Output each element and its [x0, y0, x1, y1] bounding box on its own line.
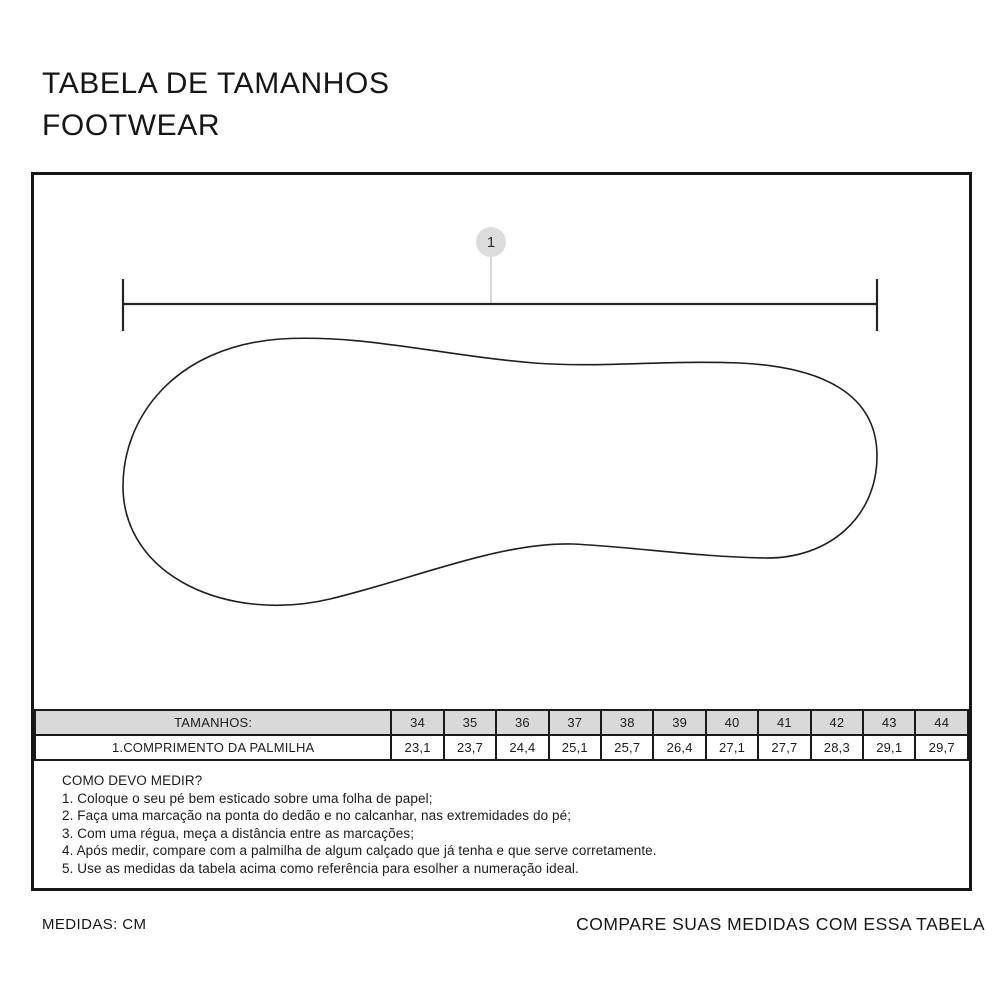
instruction-step: 2. Faça uma marcação na ponta do dedão e…	[62, 807, 942, 825]
length-cell: 29,1	[863, 735, 915, 760]
measuring-instructions: COMO DEVO MEDIR? 1. Coloque o seu pé bem…	[62, 772, 942, 877]
size-table-row-label: 1.COMPRIMENTO DA PALMILHA	[35, 735, 391, 760]
dimension-marker-1-label: 1	[487, 234, 495, 251]
size-cell: 41	[758, 710, 810, 735]
size-table: TAMANHOS: 34 35 36 37 38 39 40 41 42 43 …	[34, 709, 969, 761]
length-cell: 26,4	[653, 735, 705, 760]
length-cell: 23,7	[444, 735, 496, 760]
size-cell: 37	[549, 710, 601, 735]
length-cell: 25,1	[549, 735, 601, 760]
length-cell: 29,7	[915, 735, 968, 760]
length-cell: 28,3	[811, 735, 863, 760]
size-cell: 42	[811, 710, 863, 735]
size-cell: 36	[496, 710, 548, 735]
length-cell: 27,1	[706, 735, 758, 760]
instructions-heading: COMO DEVO MEDIR?	[62, 772, 942, 790]
page-title-line2: FOOTWEAR	[42, 109, 220, 142]
size-chart-frame: 1 TAMANHOS: 34 35 36 37 38 39 40 41 42 4…	[31, 172, 972, 891]
size-table-header-label: TAMANHOS:	[35, 710, 391, 735]
page-title-line1: TABELA DE TAMANHOS	[42, 67, 390, 100]
page-title: TABELA DE TAMANHOSFOOTWEAR	[42, 63, 390, 147]
size-chart-page: TABELA DE TAMANHOSFOOTWEAR 1 TAMANHOS: 3…	[0, 0, 1000, 1000]
size-cell: 44	[915, 710, 968, 735]
measurement-diagram-svg	[34, 175, 969, 709]
size-cell: 38	[601, 710, 653, 735]
units-note: MEDIDAS: CM	[42, 916, 146, 933]
dimension-marker-1: 1	[476, 227, 506, 257]
size-cell: 39	[653, 710, 705, 735]
size-cell: 35	[444, 710, 496, 735]
instruction-step: 1. Coloque o seu pé bem esticado sobre u…	[62, 790, 942, 808]
insole-outline	[123, 338, 877, 605]
size-cell: 43	[863, 710, 915, 735]
instruction-step: 4. Após medir, compare com a palmilha de…	[62, 842, 942, 860]
length-cell: 24,4	[496, 735, 548, 760]
measurement-diagram: 1	[34, 175, 969, 709]
size-cell: 34	[391, 710, 443, 735]
size-cell: 40	[706, 710, 758, 735]
length-cell: 25,7	[601, 735, 653, 760]
size-table-length-row: 1.COMPRIMENTO DA PALMILHA 23,1 23,7 24,4…	[35, 735, 968, 760]
instruction-step: 5. Use as medidas da tabela acima como r…	[62, 860, 942, 878]
size-table-header-row: TAMANHOS: 34 35 36 37 38 39 40 41 42 43 …	[35, 710, 968, 735]
length-cell: 27,7	[758, 735, 810, 760]
instruction-step: 3. Com uma régua, meça a distância entre…	[62, 825, 942, 843]
compare-note: COMPARE SUAS MEDIDAS COM ESSA TABELA	[576, 914, 985, 935]
length-cell: 23,1	[391, 735, 443, 760]
